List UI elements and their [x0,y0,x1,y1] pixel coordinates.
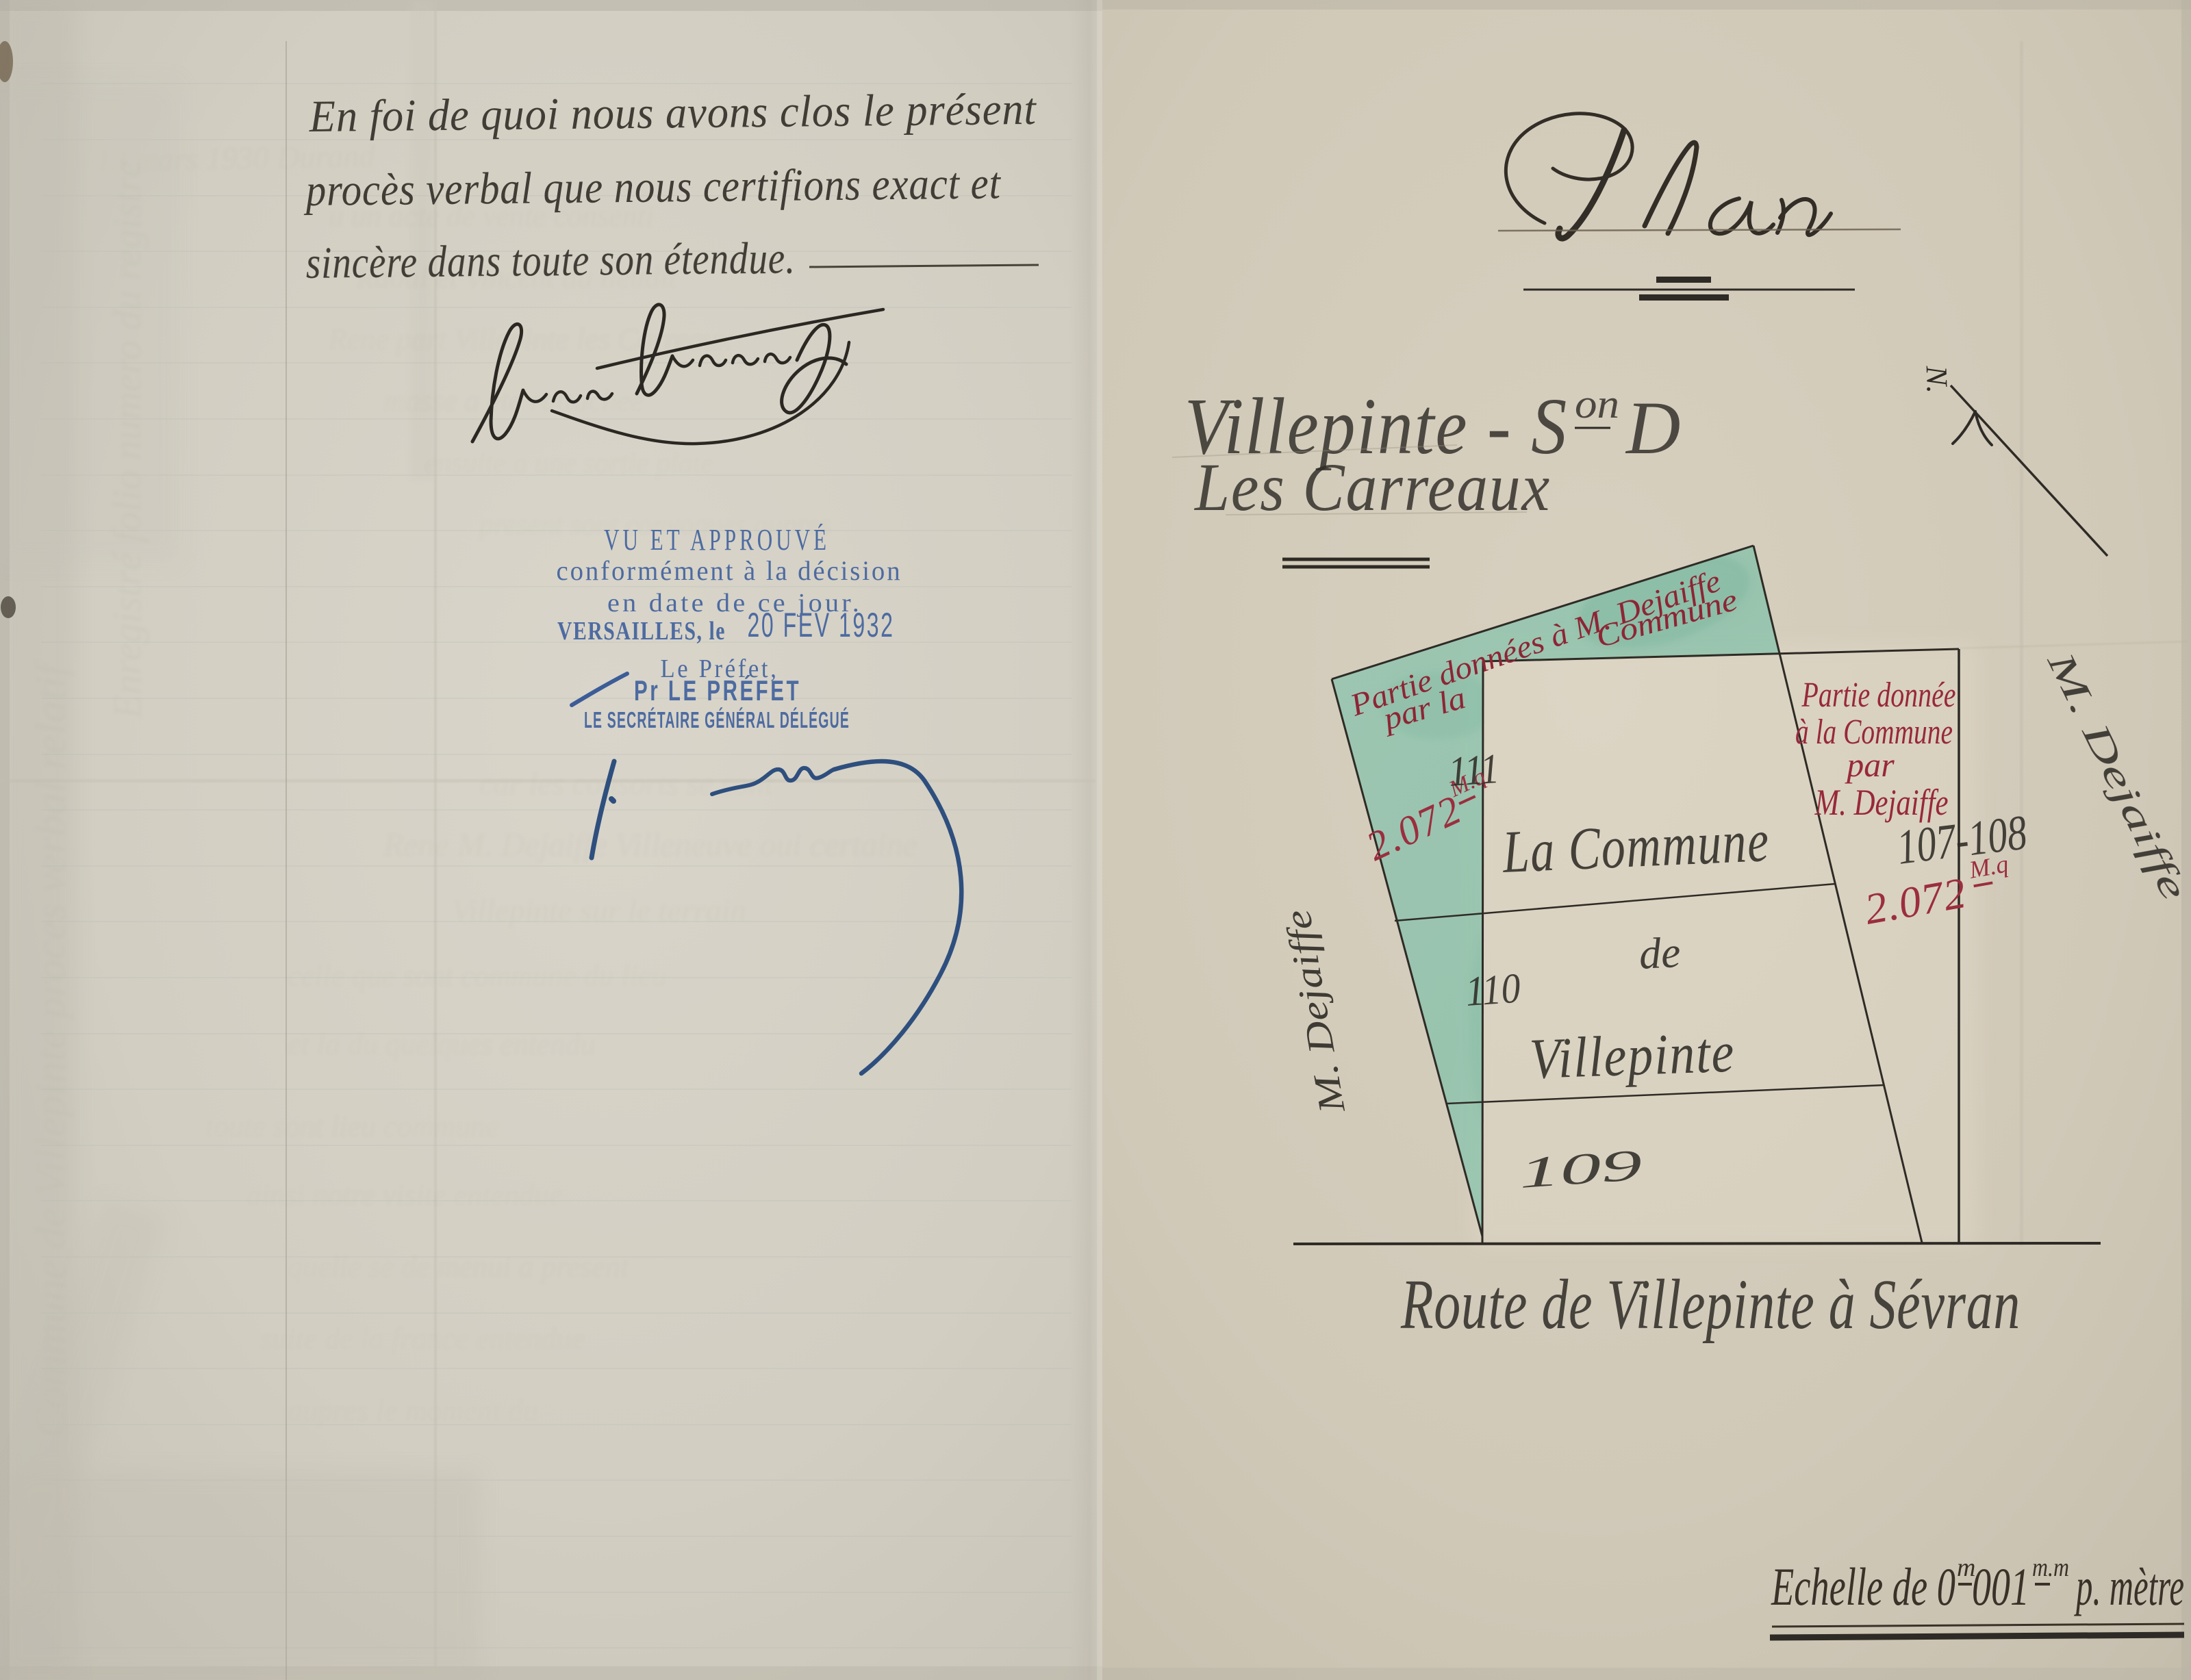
svg-text:VU ET APPROUVÉ: VU ET APPROUVÉ [604,523,830,557]
svg-text:de: de [1638,928,1682,978]
svg-text:ensuite a une sortie plate: ensuite a une sortie plate [425,448,713,479]
svg-text:D: D [1625,386,1680,470]
svg-text:on: on [1575,381,1619,427]
svg-text:VERSAILLES, le: VERSAILLES, le [557,617,726,646]
svg-text:par: par [1845,746,1895,784]
svg-text:N.: N. [1920,364,1954,394]
svg-text:Rene M. Dejaiffe Villeneuve: Rene M. Dejaiffe Villeneuve oui certaine [383,827,917,863]
svg-text:Villepinte sur le terrain: Villepinte sur le terrain [452,893,746,928]
svg-text:sincère dans toute son étendue: sincère dans toute son étendue. [305,233,796,288]
svg-text:LE SECRÉTAIRE GÉNÉRAL DÉLÉGUÉ: LE SECRÉTAIRE GÉNÉRAL DÉLÉGUÉ [584,707,850,733]
svg-text:car les consorts se sont: car les consorts se sont [479,766,774,801]
svg-text:Enregistré folio numero du: Enregistré folio numero du registre [105,160,149,720]
svg-text:Echelle de 0: Echelle de 0 [1771,1557,1955,1616]
svg-text:En foi de quoi nous avons clos: En foi de quoi nous avons clos le présen… [308,84,1037,142]
svg-text:et la du quelques entendu: et la du quelques entendu [288,1028,596,1061]
svg-text:toute sont lieu commune: toute sont lieu commune [205,1110,499,1143]
svg-text:ainsi notre visite entendue: ainsi notre visite entendue [246,1178,562,1212]
svg-text:quelle se de menui a pres: quelle se de menui a present [288,1250,630,1284]
svg-text:110: 110 [1464,965,1522,1015]
svg-text:aupres le moment du: aupres le moment du [288,1394,538,1427]
svg-text:conformément à la décision: conformément à la décision [557,555,902,586]
svg-text:procès verbal que nous certifi: procès verbal que nous certifions exact … [303,158,1002,216]
svg-text:m.m: m.m [2032,1553,2069,1582]
svg-text:Villepinte: Villepinte [1528,1021,1736,1091]
svg-text:Route de Villepinte à Sévran: Route de Villepinte à Sévran [1400,1265,2021,1344]
svg-text:001: 001 [1972,1557,2029,1616]
svg-text:20 FEV 1932: 20 FEV 1932 [748,606,895,644]
svg-text:La Commune: La Commune [1500,808,1771,886]
svg-text:109: 109 [1517,1141,1644,1197]
svg-text:Pr LE PRÉFET: Pr LE PRÉFET [634,674,801,707]
svg-text:111: 111 [1447,746,1501,796]
svg-text:p. mètre: p. mètre [2074,1557,2184,1616]
svg-text:Partie donnée: Partie donnée [1801,676,1956,715]
svg-text:celle que sont commune du: celle que sont commune du lieu [288,959,667,993]
svg-text:suite de la france entendu: suite de la france entendue [260,1322,585,1356]
